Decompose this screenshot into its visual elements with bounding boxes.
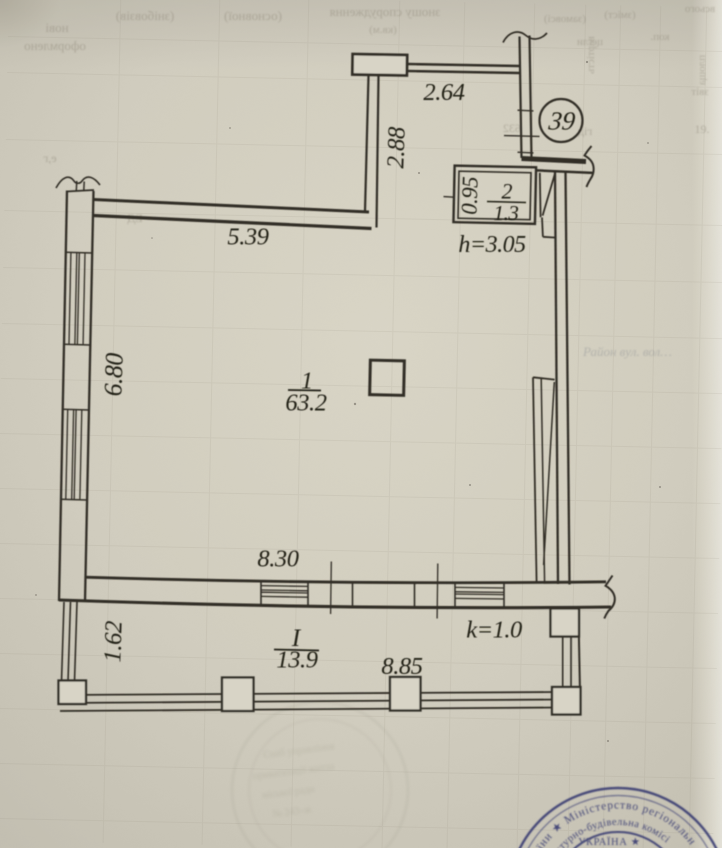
svg-text:вартість: вартість [585,36,597,74]
svg-text:6.80: 6.80 [98,352,129,397]
svg-text:е,г: е,г [43,151,56,165]
svg-text:0.95: 0.95 [456,176,482,215]
svg-text:(знібовзів): (знібовзів) [116,8,175,23]
svg-text:h=3.05: h=3.05 [458,232,526,258]
svg-text:39: 39 [546,107,577,136]
svg-text:2: 2 [502,179,513,204]
svg-text:коп.: коп. [650,31,669,43]
svg-text:звіт: звіт [691,86,709,98]
svg-text:63.2: 63.2 [285,390,326,417]
svg-text:Район вул. вол…: Район вул. вол… [582,344,672,359]
svg-text:площа: площа [696,55,708,85]
svg-text:632: 632 [503,121,521,135]
svg-text:(основної): (основної) [224,8,282,23]
svg-text:(кв.м): (кв.м) [369,24,397,36]
svg-text:(зміст): (зміст) [604,9,636,21]
svg-text:2.88: 2.88 [382,126,410,168]
svg-text:2.64: 2.64 [423,79,464,106]
svg-text:1.3: 1.3 [493,201,518,225]
svg-text:всього: всього [684,3,715,15]
svg-text:зношу спорудження: зношу спорудження [330,4,441,19]
svg-text:5.39: 5.39 [227,224,268,251]
svg-text:оформлено: оформлено [24,38,86,53]
svg-text:k=1.0: k=1.0 [466,617,522,644]
svg-text:УКРАЇНА ★: УКРАЇНА ★ [578,836,641,848]
svg-text:8.30: 8.30 [257,546,298,573]
svg-text:1.62: 1.62 [99,620,127,662]
svg-text:нові: нові [45,20,69,35]
svg-text:(замовсі): (замовсі) [544,13,586,25]
svg-text:8.85: 8.85 [381,653,422,680]
svg-text:19.: 19. [695,122,710,136]
